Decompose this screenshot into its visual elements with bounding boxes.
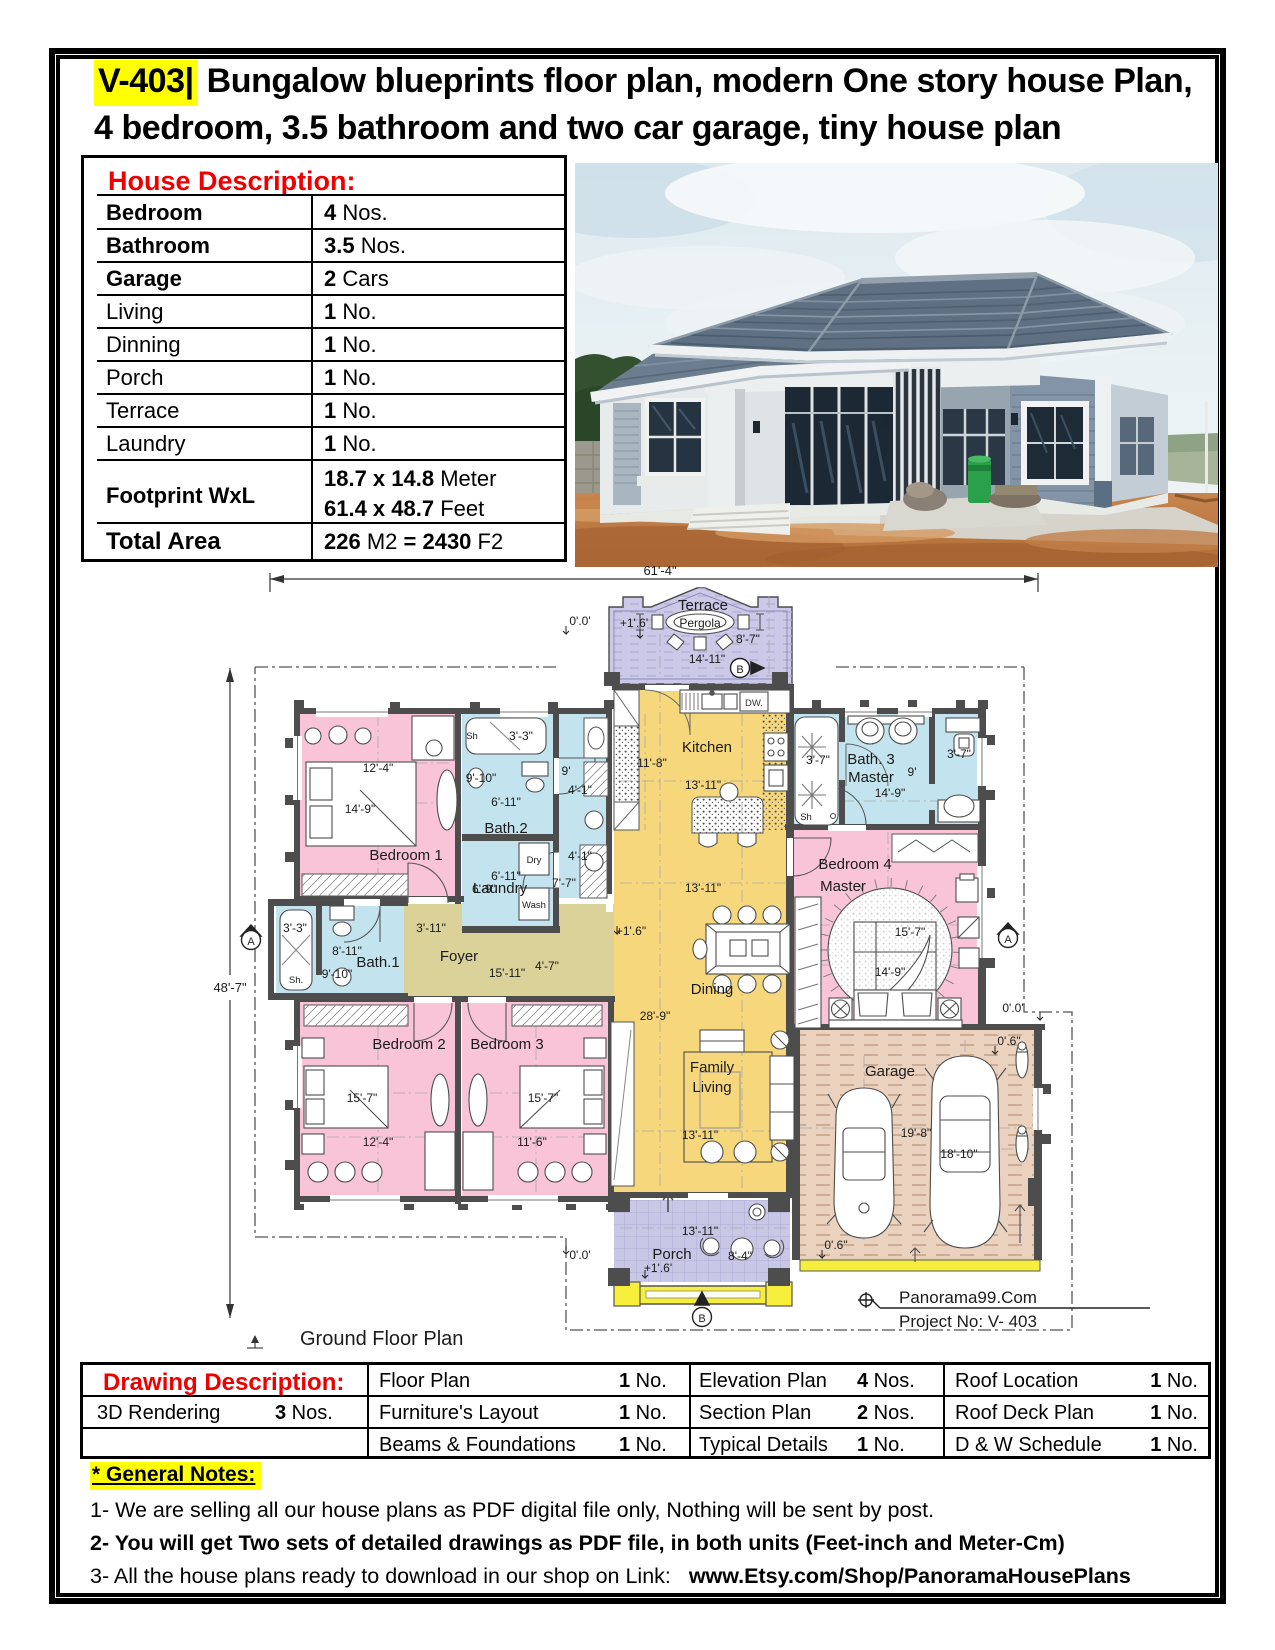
svg-text:4'-1": 4'-1" [568, 783, 592, 797]
svg-text:Bedroom 4: Bedroom 4 [818, 856, 891, 873]
svg-text:Project No: V- 403: Project No: V- 403 [899, 1312, 1037, 1331]
svg-text:6'-11": 6'-11" [491, 795, 521, 809]
svg-text:4'-7": 4'-7" [535, 959, 559, 973]
svg-text:Pergola: Pergola [679, 616, 721, 630]
svg-text:12'-4": 12'-4" [363, 761, 394, 775]
svg-text:4'-1": 4'-1" [568, 849, 592, 863]
svg-text:8'-4": 8'-4" [728, 1249, 752, 1263]
svg-text:3'-7": 3'-7" [947, 747, 971, 761]
svg-text:+1'.6': +1'.6' [620, 616, 648, 630]
svg-text:15'-7": 15'-7" [347, 1091, 378, 1105]
svg-text:7'-7": 7'-7" [552, 876, 576, 890]
svg-text:6'-9": 6'-9" [472, 882, 496, 896]
svg-text:15'-11": 15'-11" [489, 966, 525, 980]
svg-text:18'-10": 18'-10" [940, 1147, 977, 1161]
svg-text:Bedroom 1: Bedroom 1 [369, 847, 442, 864]
svg-text:8'-7": 8'-7" [736, 632, 760, 646]
svg-text:A: A [1004, 934, 1012, 946]
svg-text:0'.6": 0'.6" [824, 1238, 847, 1252]
svg-text:61'-4": 61'-4" [643, 565, 677, 578]
svg-text:9': 9' [562, 764, 571, 778]
svg-text:Terrace: Terrace [678, 597, 728, 614]
svg-text:+1'.6': +1'.6' [644, 1261, 672, 1275]
svg-text:13'-11": 13'-11" [685, 778, 721, 792]
svg-text:Dry: Dry [527, 855, 542, 866]
svg-text:28'-9": 28'-9" [640, 1009, 671, 1023]
svg-text:Bedroom 3: Bedroom 3 [470, 1036, 543, 1053]
svg-text:Sh: Sh [800, 812, 812, 823]
svg-text:Dining: Dining [691, 981, 734, 998]
svg-text:Master: Master [848, 769, 894, 786]
svg-text:+1'.6": +1'.6" [616, 924, 646, 938]
svg-text:13'-11": 13'-11" [685, 881, 721, 895]
svg-text:DW.: DW. [745, 698, 763, 709]
svg-text:6'-11": 6'-11" [491, 869, 521, 883]
svg-text:Garage: Garage [865, 1063, 915, 1080]
svg-text:3'-11": 3'-11" [416, 921, 446, 935]
svg-text:0'.0': 0'.0' [1002, 1001, 1023, 1015]
svg-text:9'-10": 9'-10" [466, 771, 497, 785]
svg-text:A: A [247, 936, 255, 948]
svg-text:Family: Family [690, 1059, 735, 1076]
svg-text:15'-7": 15'-7" [528, 1091, 559, 1105]
svg-text:Foyer: Foyer [440, 948, 478, 965]
svg-text:B: B [698, 1313, 705, 1325]
svg-text:0'.0': 0'.0' [569, 1248, 590, 1262]
svg-text:3'-3": 3'-3" [283, 921, 307, 935]
svg-text:0'.6": 0'.6" [997, 1034, 1020, 1048]
svg-text:13'-11": 13'-11" [682, 1224, 718, 1238]
svg-text:13'-11": 13'-11" [682, 1128, 718, 1142]
svg-text:Kitchen: Kitchen [682, 739, 732, 756]
svg-text:14'-9": 14'-9" [875, 965, 906, 979]
svg-text:Ground Floor Plan: Ground Floor Plan [300, 1328, 463, 1350]
svg-text:Bath.2: Bath.2 [484, 820, 527, 837]
svg-text:3'-7": 3'-7" [806, 753, 830, 767]
svg-text:Bedroom 2: Bedroom 2 [372, 1036, 445, 1053]
svg-text:Bath.1: Bath.1 [356, 954, 399, 971]
svg-text:0'.0': 0'.0' [569, 614, 590, 628]
svg-text:11'-8": 11'-8" [637, 756, 667, 770]
svg-text:15'-7": 15'-7" [895, 925, 926, 939]
svg-text:Wash: Wash [522, 900, 546, 911]
svg-text:Sh: Sh [466, 731, 478, 742]
svg-text:14'-9": 14'-9" [875, 786, 906, 800]
svg-text:9'-10": 9'-10" [322, 967, 353, 981]
svg-text:Master: Master [820, 878, 866, 895]
svg-text:Bath. 3: Bath. 3 [847, 751, 895, 768]
svg-text:9': 9' [908, 765, 917, 779]
svg-text:12'-4": 12'-4" [363, 1135, 394, 1149]
svg-text:48'-7": 48'-7" [213, 980, 247, 995]
svg-text:Sh.: Sh. [289, 975, 303, 986]
svg-text:14'-11": 14'-11" [689, 652, 725, 666]
svg-text:11'-6": 11'-6" [517, 1135, 547, 1149]
svg-text:19'-8": 19'-8" [901, 1126, 932, 1140]
svg-text:8'-11": 8'-11" [332, 944, 362, 958]
svg-text:Panorama99.Com: Panorama99.Com [899, 1288, 1037, 1307]
svg-text:B: B [736, 664, 743, 676]
svg-text:3'-3": 3'-3" [509, 729, 533, 743]
svg-text:Living: Living [692, 1079, 731, 1096]
svg-text:14'-9": 14'-9" [345, 802, 376, 816]
